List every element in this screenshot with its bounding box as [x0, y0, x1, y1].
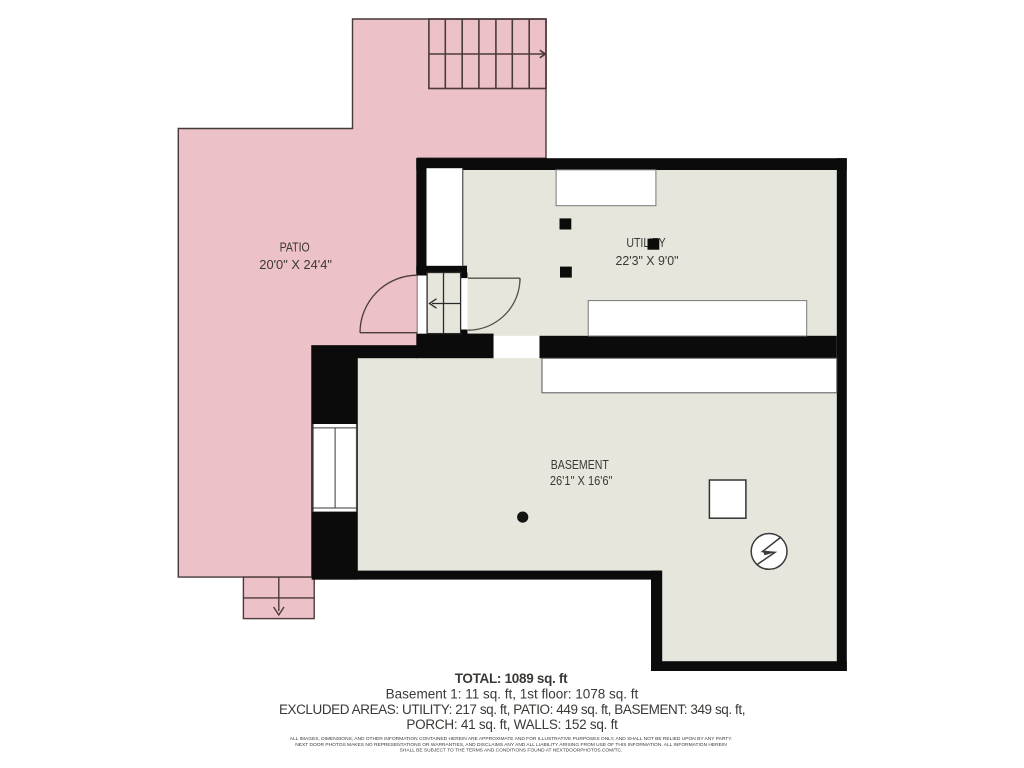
svg-text:TOTAL: 1089 sq. ft: TOTAL: 1089 sq. ft [455, 671, 568, 686]
svg-text:20'0" X 24'4": 20'0" X 24'4" [259, 257, 332, 272]
svg-text:ALL IMAGES, DIMENSIONS, AND OT: ALL IMAGES, DIMENSIONS, AND OTHER INFORM… [290, 736, 732, 742]
svg-text:UTILITY: UTILITY [626, 236, 666, 250]
svg-text:NEXT DOOR PHOTOS MAKES NO REPR: NEXT DOOR PHOTOS MAKES NO REPRESENTATION… [295, 742, 727, 748]
svg-text:BASEMENT: BASEMENT [551, 458, 609, 472]
svg-text:SHALL BE SUBJECT TO THE TERMS: SHALL BE SUBJECT TO THE TERMS AND CONDIT… [400, 748, 623, 754]
svg-text:Basement 1: 11 sq. ft, 1st flo: Basement 1: 11 sq. ft, 1st floor: 1078 s… [386, 687, 639, 702]
svg-text:26'1" X 16'6": 26'1" X 16'6" [550, 473, 613, 488]
svg-text:22'3" X 9'0": 22'3" X 9'0" [615, 254, 678, 268]
svg-text:EXCLUDED AREAS: UTILITY: 217 s: EXCLUDED AREAS: UTILITY: 217 sq. ft, PAT… [279, 702, 745, 717]
svg-text:PATIO: PATIO [280, 241, 310, 255]
svg-text:PORCH: 41 sq. ft, WALLS: 152 s: PORCH: 41 sq. ft, WALLS: 152 sq. ft [406, 717, 618, 732]
